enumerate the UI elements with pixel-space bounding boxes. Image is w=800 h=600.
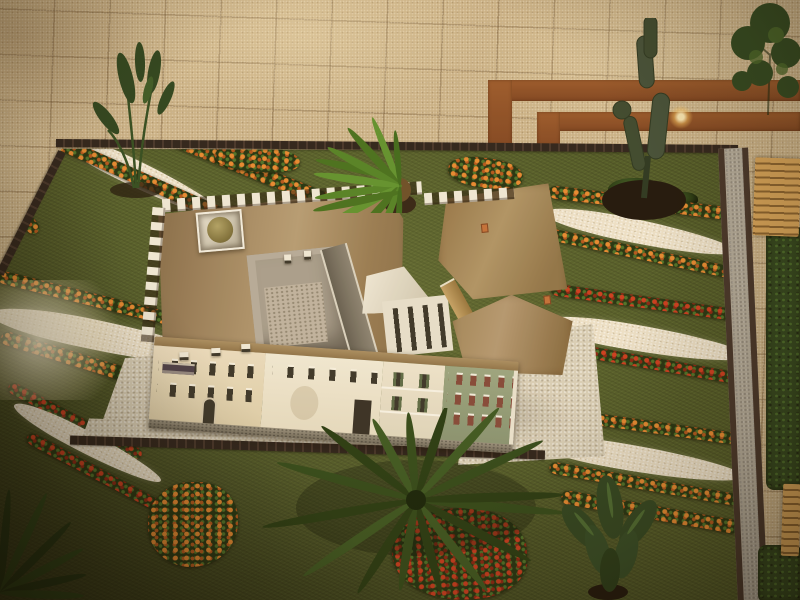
courtyard-cobble-floor [264, 282, 328, 348]
courtyard-dormer [284, 254, 291, 263]
wooden-bench-top [753, 157, 800, 237]
inlay-band-vertical-1 [488, 80, 512, 152]
hedge-right [766, 225, 800, 490]
sago-palm-plant [312, 58, 487, 213]
bird-of-paradise-plant [78, 38, 198, 198]
classical-portico [360, 257, 455, 348]
facade-sign [162, 362, 195, 375]
light-glow-left-gravel [0, 280, 130, 400]
roof-dormer [179, 352, 188, 360]
roof-dormer [211, 348, 220, 356]
facade-arched-door [201, 397, 218, 426]
chimney [543, 295, 551, 305]
rubber-plant [540, 452, 675, 600]
courtyard-dormer [304, 251, 311, 260]
portico-columns-windows [387, 303, 447, 353]
chimney [481, 223, 489, 233]
large-palm-plant [258, 408, 578, 600]
cactus-plant [592, 18, 707, 243]
roof-dormer [241, 344, 250, 352]
corner-tree [698, 0, 800, 120]
portico-facade [382, 295, 453, 358]
miniature-model-photo [0, 0, 800, 600]
wooden-bench-bottom [781, 484, 800, 557]
facade-house-cream [149, 345, 266, 429]
corner-fern-plant [0, 468, 112, 600]
